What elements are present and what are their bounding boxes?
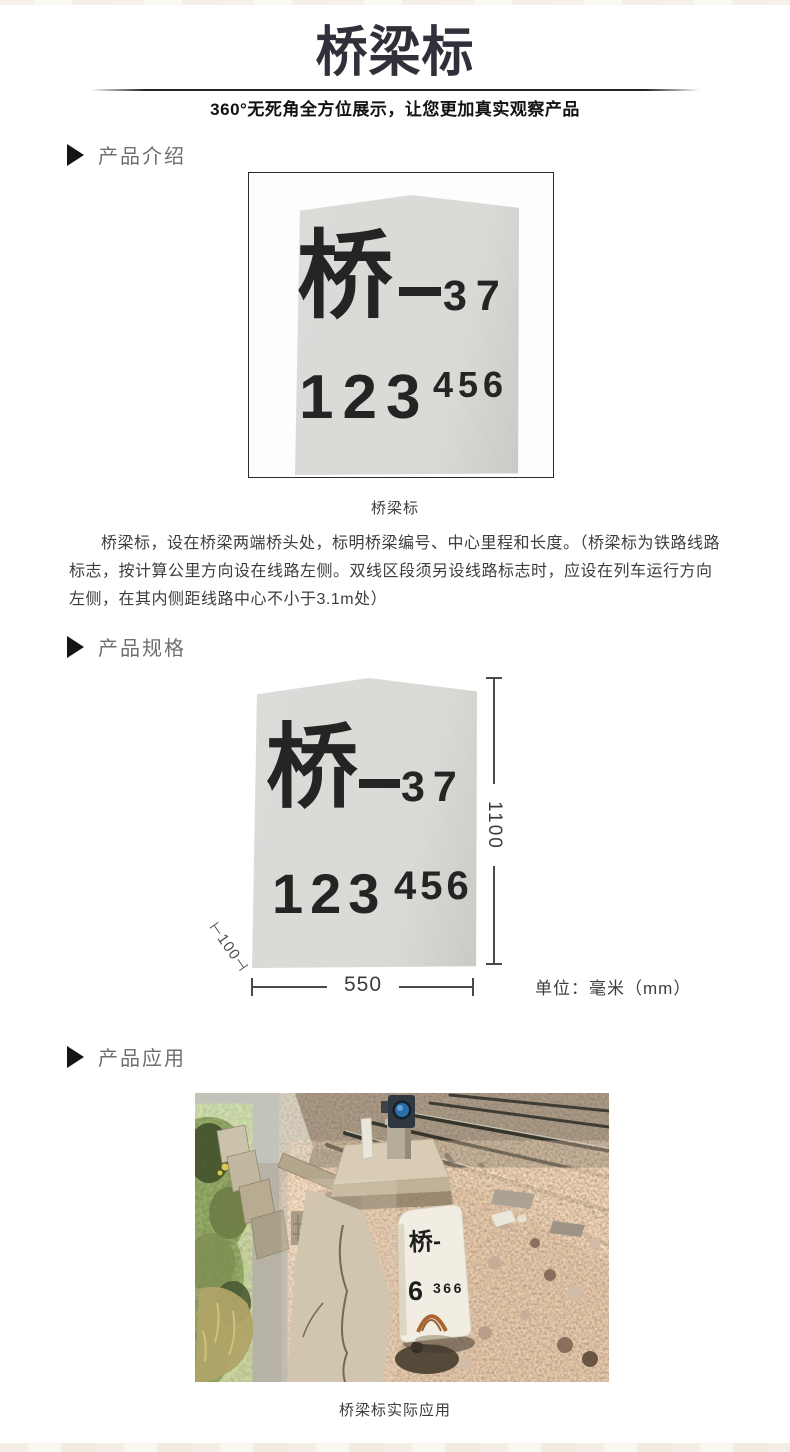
height-dimension-tick [486,677,502,679]
top-photo-edge-strip [0,0,790,5]
width-dimension-tick [251,978,253,996]
height-dimension-label: 1100 [477,784,511,866]
section-label: 产品规格 [98,632,186,661]
stone-prefix-char: 桥 [266,722,358,814]
page-title: 桥梁标 [0,21,790,85]
stone-mileage-main: 123 [272,866,386,922]
section-header-spec: 产品规格 [67,632,186,661]
stone-dash: — [399,287,441,296]
section-label: 产品介绍 [98,140,186,169]
photo-stone-number-sub: 366 [433,1280,464,1296]
section-arrow-icon [67,636,84,658]
white-post [361,1118,373,1159]
photo-stone-number-main: 6 [408,1276,423,1306]
width-dimension-label: 550 [327,973,399,997]
application-photo: 桥- 6 366 [195,1093,609,1382]
marker-stone-photo: 桥- 6 366 [398,1205,475,1353]
title-divider [90,89,700,91]
page-subtitle: 360°无死角全方位展示，让您更加真实观察产品 [0,95,790,120]
unit-label: 单位：毫米（mm） [535,974,691,999]
intro-caption: 桥梁标 [0,497,790,518]
thickness-dimension-label: ⊢100⊣ [200,912,257,983]
intro-description: 桥梁标，设在桥梁两端桥头处，标明桥梁编号、中心里程和长度。（桥梁标为铁路线路标志… [69,530,721,614]
stone-mileage-sup: 456 [394,866,473,906]
product-detail-page: 桥梁标 360°无死角全方位展示，让您更加真实观察产品 产品介绍 桥 — 37 … [0,0,790,1452]
stone-mileage-sup: 456 [433,367,508,403]
section-label: 产品应用 [98,1042,186,1071]
bridge-marker-render: 桥 — 37 123 456 [295,195,519,475]
section-arrow-icon [67,1046,84,1068]
section-header-intro: 产品介绍 [67,140,186,169]
railway-scene: 桥- 6 366 [195,1093,609,1382]
photo-stone-prefix: 桥- [408,1228,441,1257]
width-dimension-tick [472,978,474,996]
stone-prefix-char: 桥 [297,229,393,325]
application-caption: 桥梁标实际应用 [0,1399,790,1420]
stone-mileage-main: 123 [299,367,429,429]
section-arrow-icon [67,144,84,166]
height-dimension-tick [486,963,502,965]
section-header-application: 产品应用 [67,1042,186,1071]
stone-dash: — [359,779,400,788]
stone-bridge-number: 37 [443,275,509,318]
intro-product-figure: 桥 — 37 123 456 [248,172,554,478]
stone-bridge-number: 37 [401,766,465,809]
bridge-marker-spec-render: 桥 — 37 123 456 [252,678,477,968]
bottom-photo-edge-strip [0,1443,790,1452]
